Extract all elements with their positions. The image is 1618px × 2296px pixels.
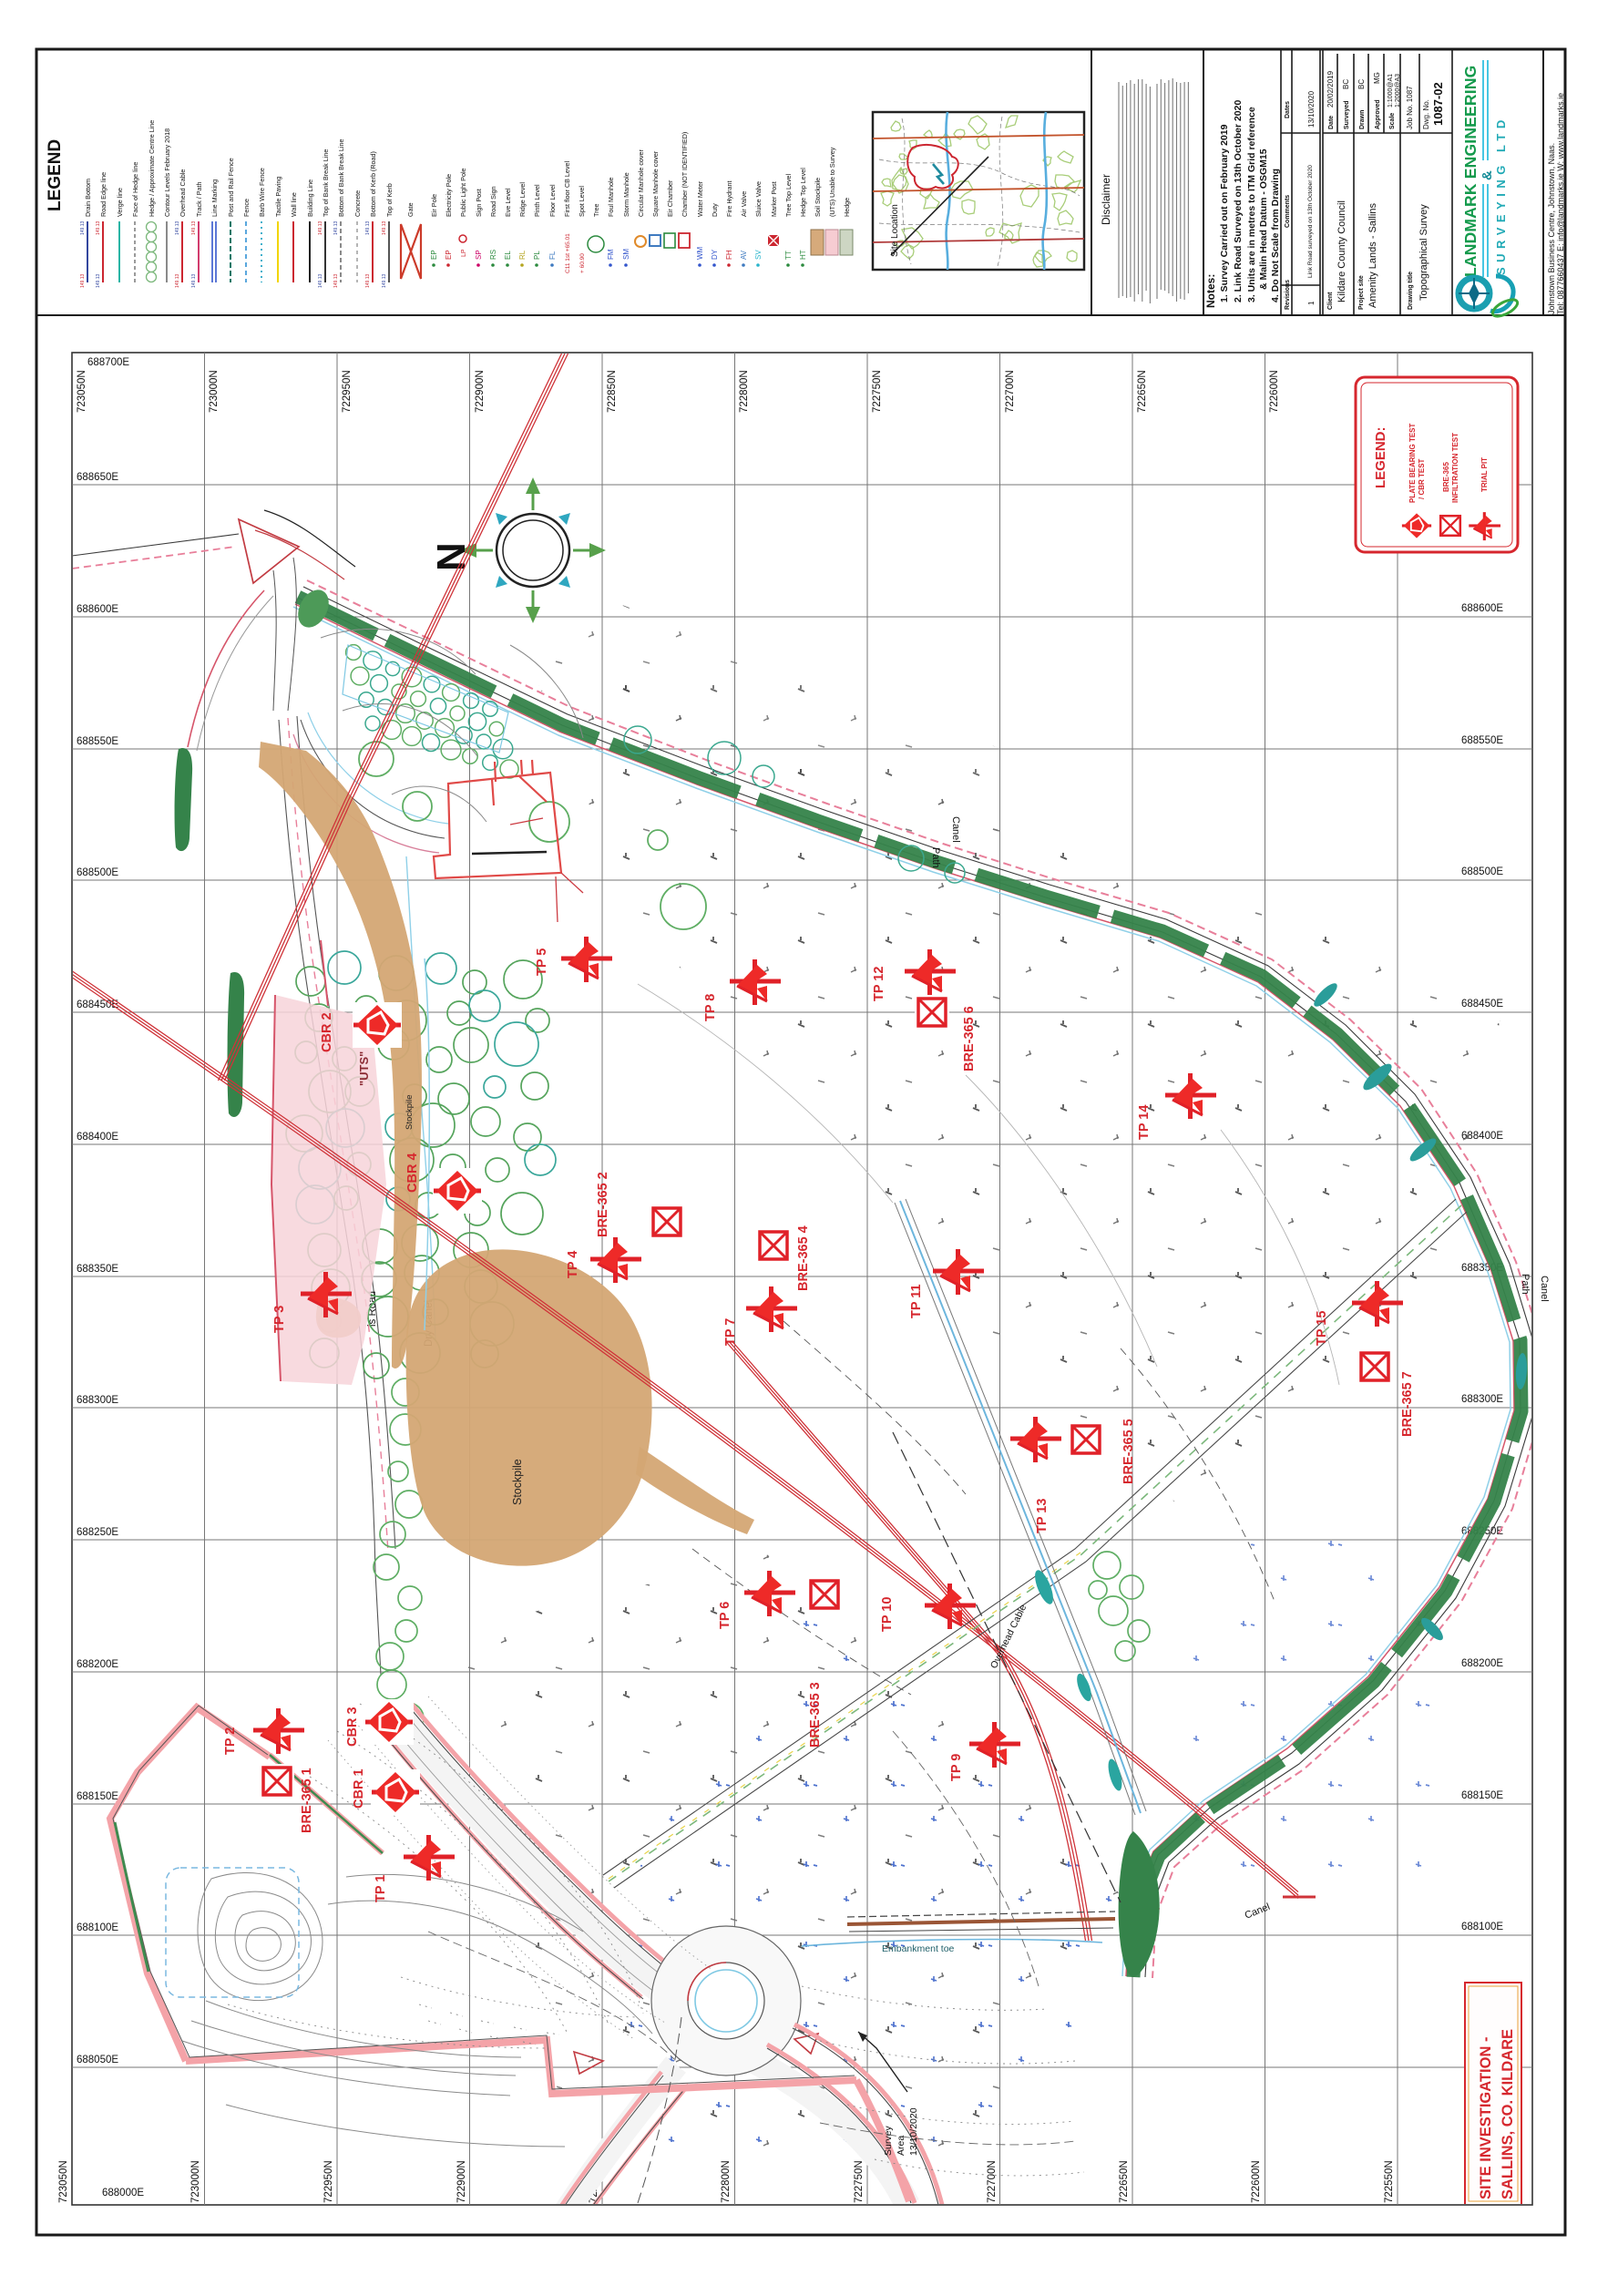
svg-text:Topographical Survey: Topographical Survey — [1418, 204, 1429, 301]
svg-text:Road Edge line: Road Edge line — [99, 172, 108, 217]
svg-text:BRE-365 2: BRE-365 2 — [596, 1172, 610, 1237]
svg-text:Hedge: Hedge — [843, 198, 851, 217]
svg-text:722600N: 722600N — [1251, 2160, 1262, 2203]
svg-text:Survey: Survey — [883, 2126, 894, 2156]
svg-text:1: 1 — [1307, 301, 1316, 305]
svg-text:688400E: 688400E — [77, 1132, 118, 1143]
svg-text:TP 5: TP 5 — [535, 948, 549, 976]
svg-text:688650E: 688650E — [77, 472, 118, 483]
svg-text:Marker Post: Marker Post — [770, 181, 778, 217]
svg-text:688150E: 688150E — [1461, 1790, 1503, 1801]
svg-text:LEGEND:: LEGEND: — [1373, 427, 1388, 489]
svg-text:149.13: 149.13 — [318, 220, 323, 235]
svg-text:149.13: 149.13 — [382, 220, 387, 235]
svg-text:RS: RS — [489, 250, 497, 260]
svg-text:FM: FM — [607, 249, 615, 260]
svg-text:TP 13: TP 13 — [1035, 1499, 1050, 1533]
svg-text:Client: Client — [1327, 292, 1334, 310]
svg-text:Track / Path: Track / Path — [195, 182, 203, 217]
svg-text:+ 60.90: + 60.90 — [579, 253, 586, 273]
svg-text:TP 9: TP 9 — [949, 1754, 964, 1781]
svg-text:TP 4: TP 4 — [566, 1251, 580, 1278]
svg-text:Line Marking: Line Marking — [210, 179, 219, 217]
svg-text:Public Light Pole: Public Light Pole — [459, 168, 467, 217]
svg-text:Post and Rail Fence: Post and Rail Fence — [227, 158, 235, 217]
svg-text:Amenity Lands - Sallins: Amenity Lands - Sallins — [1367, 203, 1378, 308]
svg-text:149.13: 149.13 — [80, 273, 86, 288]
svg-text:1. Survey Carried out on Fe: 1. Survey Carried out on February 2019 — [1219, 124, 1230, 302]
svg-text:Spot Level: Spot Level — [578, 186, 586, 217]
svg-text:13/10/2020: 13/10/2020 — [1307, 90, 1316, 128]
svg-text:TP 1: TP 1 — [374, 1875, 388, 1902]
svg-text:Tree: Tree — [592, 203, 600, 217]
svg-text:TP 10: TP 10 — [880, 1597, 895, 1632]
svg-text:Stockpile: Stockpile — [404, 1094, 415, 1130]
svg-text:Air Valve: Air Valve — [740, 191, 748, 217]
svg-text:Path: Path — [1520, 1274, 1531, 1295]
svg-text:Hedge / Approximate Centre Lin: Hedge / Approximate Centre Line — [148, 120, 156, 217]
svg-text:Verge line: Verge line — [116, 188, 124, 217]
svg-text:3. Units are in metres to I: 3. Units are in metres to ITM Grid refer… — [1246, 107, 1257, 302]
svg-text:688300E: 688300E — [1461, 1394, 1503, 1405]
svg-text:SM: SM — [622, 249, 630, 260]
svg-text:Tree Top Level: Tree Top Level — [784, 173, 793, 217]
svg-text:Barb Wire Fence: Barb Wire Fence — [258, 168, 266, 217]
svg-text:SURVEYING LTD: SURVEYING LTD — [1494, 115, 1508, 275]
svg-text:149.13: 149.13 — [80, 220, 86, 235]
svg-text:Sluice Valve: Sluice Valve — [754, 181, 763, 217]
svg-text:TRIAL PIT: TRIAL PIT — [1480, 457, 1489, 492]
svg-text:BRE-365 4: BRE-365 4 — [796, 1225, 811, 1291]
svg-text:BRE-365: BRE-365 — [1442, 462, 1450, 492]
svg-text:13/10/2020: 13/10/2020 — [908, 2107, 919, 2156]
svg-text:722950N: 722950N — [342, 370, 353, 413]
svg-text:Stockpile: Stockpile — [511, 1459, 524, 1505]
svg-text:722950N: 722950N — [323, 2160, 334, 2203]
svg-text:688050E: 688050E — [77, 2055, 118, 2065]
svg-text:Path: Path — [930, 847, 941, 868]
svg-text:149.13: 149.13 — [175, 220, 180, 235]
svg-text:688700E: 688700E — [87, 357, 129, 368]
svg-text:Building Line: Building Line — [306, 179, 314, 217]
svg-text:149.13: 149.13 — [191, 220, 197, 235]
svg-text:CBR 2: CBR 2 — [320, 1012, 334, 1052]
svg-text:FL: FL — [548, 251, 557, 260]
svg-text:"UTS": "UTS" — [357, 1051, 371, 1086]
svg-text:Comments: Comments — [1285, 195, 1291, 228]
svg-text:HT: HT — [799, 250, 807, 260]
svg-text:Approved: Approved — [1375, 99, 1381, 129]
svg-text:149.13: 149.13 — [333, 220, 339, 235]
svg-text:BRE-365 1: BRE-365 1 — [300, 1768, 314, 1833]
svg-text:Date: Date — [1328, 116, 1335, 129]
svg-text:1:2000@A3: 1:2000@A3 — [1395, 74, 1401, 108]
svg-text:Road Sign: Road Sign — [489, 186, 497, 217]
svg-text:PLATE BEARING TEST: PLATE BEARING TEST — [1408, 423, 1417, 503]
svg-text:149.13: 149.13 — [365, 273, 371, 288]
svg-text:TP 6: TP 6 — [718, 1602, 732, 1629]
svg-text:688350E: 688350E — [77, 1264, 118, 1275]
svg-text:SP: SP — [475, 250, 483, 260]
svg-text:722850N: 722850N — [607, 370, 618, 413]
svg-text:722650N: 722650N — [1137, 370, 1148, 413]
svg-text:Revisions: Revisions — [1285, 280, 1291, 310]
svg-text:149.13: 149.13 — [333, 273, 339, 288]
svg-text:Fence: Fence — [242, 199, 251, 217]
svg-text:723000N: 723000N — [209, 370, 220, 413]
svg-text:Floor Level: Floor Level — [548, 184, 557, 217]
svg-text:Top of Bank Break Line: Top of Bank Break Line — [322, 149, 330, 217]
svg-text:CBR 3: CBR 3 — [345, 1707, 360, 1747]
svg-text:Sign Post: Sign Post — [475, 189, 483, 217]
svg-text:688550E: 688550E — [1461, 735, 1503, 746]
svg-text:TP 3: TP 3 — [272, 1306, 287, 1333]
svg-text:Drawing title: Drawing title — [1408, 272, 1414, 310]
svg-text:149.13: 149.13 — [318, 273, 323, 288]
svg-text:149.13: 149.13 — [365, 220, 371, 235]
svg-text:LP: LP — [461, 249, 467, 257]
svg-text:Link Road surveyed on 13th Oct: Link Road surveyed on 13th October 2020 — [1307, 165, 1314, 278]
svg-text:722550N: 722550N — [1384, 2160, 1395, 2203]
svg-text:BRE-365 3: BRE-365 3 — [808, 1682, 823, 1748]
svg-text:Tactile Paving: Tactile Paving — [274, 177, 282, 217]
svg-text:Ridge Level: Ridge Level — [518, 182, 527, 217]
svg-text:Job No. 1087: Job No. 1087 — [1406, 86, 1414, 129]
svg-text:SALLINS, CO. KILDARE: SALLINS, CO. KILDARE — [1500, 2029, 1516, 2199]
svg-text:Overhead Cable: Overhead Cable — [179, 169, 187, 217]
svg-text:SITE INVESTIGATION -: SITE INVESTIGATION - — [1478, 2037, 1494, 2199]
svg-text:CBR 4: CBR 4 — [405, 1153, 420, 1193]
svg-text:149.13: 149.13 — [96, 220, 101, 235]
svg-text:149.13: 149.13 — [382, 273, 387, 288]
svg-text:Duty: Duty — [711, 203, 719, 217]
svg-text:TP 2: TP 2 — [223, 1727, 238, 1755]
svg-text:C11 1st +65.01: C11 1st +65.01 — [565, 233, 571, 273]
svg-text:/ CBR TEST: / CBR TEST — [1418, 458, 1426, 499]
svg-text:Storm Manhole: Storm Manhole — [622, 172, 630, 217]
svg-text:Project site: Project site — [1358, 275, 1365, 310]
svg-text:DY: DY — [711, 249, 719, 260]
svg-text:4. Do Not Scale from Drawin: 4. Do Not Scale from Drawing — [1270, 169, 1281, 302]
svg-text:TP 15: TP 15 — [1315, 1311, 1329, 1346]
svg-text:Dates: Dates — [1285, 101, 1291, 118]
svg-text:688200E: 688200E — [77, 1659, 118, 1670]
svg-text:Johnstown Business Centre, Joh: Johnstown Business Centre, Johnstown, Na… — [1547, 143, 1556, 314]
svg-text:Square Manhole cover: Square Manhole cover — [651, 150, 660, 217]
svg-text:SV: SV — [754, 250, 763, 260]
svg-text:722700N: 722700N — [1005, 370, 1016, 413]
svg-text:722750N: 722750N — [872, 370, 883, 413]
svg-text:Face of Hedge line: Face of Hedge line — [131, 162, 139, 217]
svg-text:723050N: 723050N — [77, 370, 87, 413]
svg-text:722700N: 722700N — [987, 2160, 998, 2203]
svg-text:688600E: 688600E — [1461, 603, 1503, 614]
svg-text:First floor CB Level: First floor CB Level — [563, 160, 571, 217]
svg-text:Chamber (NOT IDENTIFIED): Chamber (NOT IDENTIFIED) — [681, 132, 689, 217]
svg-text:688000E: 688000E — [102, 2188, 144, 2199]
svg-text:Site Location: Site Location — [890, 204, 900, 257]
svg-text:688500E: 688500E — [77, 867, 118, 878]
svg-text:149.13: 149.13 — [191, 273, 197, 288]
svg-text:722800N: 722800N — [739, 370, 750, 413]
svg-text:1087-02: 1087-02 — [1431, 82, 1445, 126]
svg-text:AV: AV — [740, 250, 748, 260]
svg-text:Canel: Canel — [1539, 1276, 1550, 1302]
svg-text:Soil Stockpile: Soil Stockpile — [814, 178, 822, 217]
svg-text:Eir Pole: Eir Pole — [430, 194, 438, 217]
svg-text:&: & — [1480, 170, 1495, 180]
svg-text:722600N: 722600N — [1269, 370, 1280, 413]
svg-text:Pinth Level: Pinth Level — [533, 184, 541, 217]
svg-text:Hedge Top Level: Hedge Top Level — [799, 168, 807, 217]
svg-text:Canel: Canel — [950, 816, 961, 843]
svg-text:149.13: 149.13 — [96, 273, 101, 288]
svg-text:CBR 1: CBR 1 — [352, 1768, 366, 1809]
svg-text:Wall line: Wall line — [290, 192, 298, 217]
svg-text:722900N: 722900N — [456, 2160, 467, 2203]
svg-text:Tel: 0877660437 E: info@land: Tel: 0877660437 E: info@landmarks.ie W: … — [1556, 93, 1565, 314]
svg-text:149.13: 149.13 — [175, 273, 180, 288]
svg-text:Eve Level: Eve Level — [504, 188, 512, 217]
svg-text:2. Link Road Surveyed on 13: 2. Link Road Surveyed on 13th October 20… — [1233, 100, 1244, 302]
svg-text:TP 11: TP 11 — [909, 1284, 924, 1318]
svg-text:TT: TT — [784, 251, 793, 260]
svg-text:TP 7: TP 7 — [723, 1318, 738, 1346]
svg-text:LEGEND: LEGEND — [46, 139, 65, 211]
svg-text:EL: EL — [504, 251, 512, 260]
svg-text:Fire Hydrant: Fire Hydrant — [725, 180, 733, 217]
svg-text:Top of Kerb: Top of Kerb — [385, 183, 394, 217]
svg-text:BC: BC — [1342, 79, 1350, 89]
svg-text:Embankment toe: Embankment toe — [882, 1943, 955, 1954]
svg-text:Eir Chamber: Eir Chamber — [666, 179, 674, 217]
svg-text:(UTS) Unable to Survey: (UTS) Unable to Survey — [828, 147, 836, 217]
svg-text:723050N: 723050N — [58, 2160, 69, 2203]
svg-text:688300E: 688300E — [77, 1395, 118, 1406]
svg-text:RL: RL — [518, 250, 527, 260]
svg-text:INFILTRATION TEST: INFILTRATION TEST — [1451, 433, 1459, 503]
svg-text:Gate: Gate — [406, 202, 415, 217]
svg-text:MG: MG — [1373, 72, 1381, 84]
svg-text:688600E: 688600E — [77, 604, 118, 615]
svg-text:688250E: 688250E — [77, 1527, 118, 1538]
svg-text:688500E: 688500E — [1461, 866, 1503, 877]
svg-text:Contour Levels February 2018: Contour Levels February 2018 — [163, 128, 171, 217]
svg-text:& Malin Head Datum - OSGM15: & Malin Head Datum - OSGM15 — [1258, 149, 1269, 290]
svg-text:20/02/2019: 20/02/2019 — [1326, 70, 1335, 108]
svg-text:Area: Area — [896, 2136, 906, 2156]
svg-text:688150E: 688150E — [77, 1791, 118, 1802]
svg-text:Disclaimer: Disclaimer — [1100, 174, 1112, 225]
svg-text:LANDMARK ENGINEERING: LANDMARK ENGINEERING — [1461, 66, 1480, 277]
svg-text:Dwg. No.: Dwg. No. — [1422, 99, 1430, 129]
svg-text:BRE-365 7: BRE-365 7 — [1400, 1371, 1415, 1437]
svg-text:722650N: 722650N — [1119, 2160, 1130, 2203]
svg-text:688200E: 688200E — [1461, 1658, 1503, 1669]
svg-text:723000N: 723000N — [190, 2160, 201, 2203]
svg-text:EP: EP — [430, 250, 438, 260]
svg-text:Concrete: Concrete — [353, 190, 362, 217]
svg-text:Foul Manhole: Foul Manhole — [607, 177, 615, 217]
svg-text:BRE-365 5: BRE-365 5 — [1121, 1419, 1136, 1484]
svg-text:TP 12: TP 12 — [872, 967, 886, 1001]
svg-text:Notes:: Notes: — [1204, 274, 1217, 308]
svg-text:WM: WM — [696, 246, 704, 260]
svg-text:Surveyed: Surveyed — [1344, 100, 1350, 129]
svg-text:688100E: 688100E — [1461, 1922, 1503, 1932]
svg-text:Electricity Pole: Electricity Pole — [445, 174, 453, 217]
svg-text:Drain Bottom: Drain Bottom — [84, 179, 92, 217]
svg-text:Water Meter: Water Meter — [696, 180, 704, 217]
svg-text:Bottom of Kerb (Road): Bottom of Kerb (Road) — [369, 151, 377, 217]
svg-text:BC: BC — [1357, 79, 1366, 89]
svg-text:TP 14: TP 14 — [1137, 1105, 1152, 1140]
svg-text:Bottom of Bank Break Line: Bottom of Bank Break Line — [337, 138, 345, 217]
svg-text:BRE-365 6: BRE-365 6 — [962, 1006, 977, 1071]
svg-text:1:1000@A1: 1:1000@A1 — [1388, 74, 1394, 108]
svg-text:722900N: 722900N — [475, 370, 486, 413]
svg-text:TP 8: TP 8 — [703, 994, 718, 1021]
svg-text:Scale: Scale — [1389, 113, 1396, 129]
svg-text:Kildare County Council: Kildare County Council — [1336, 200, 1347, 302]
svg-text:FH: FH — [725, 250, 733, 260]
svg-text:Drawn: Drawn — [1359, 110, 1366, 129]
svg-text:688100E: 688100E — [77, 1922, 118, 1933]
svg-text:PL: PL — [533, 251, 541, 260]
svg-text:Circular Manhole cover: Circular Manhole cover — [637, 149, 645, 217]
svg-text:688550E: 688550E — [77, 736, 118, 747]
svg-text:EP: EP — [445, 250, 453, 260]
